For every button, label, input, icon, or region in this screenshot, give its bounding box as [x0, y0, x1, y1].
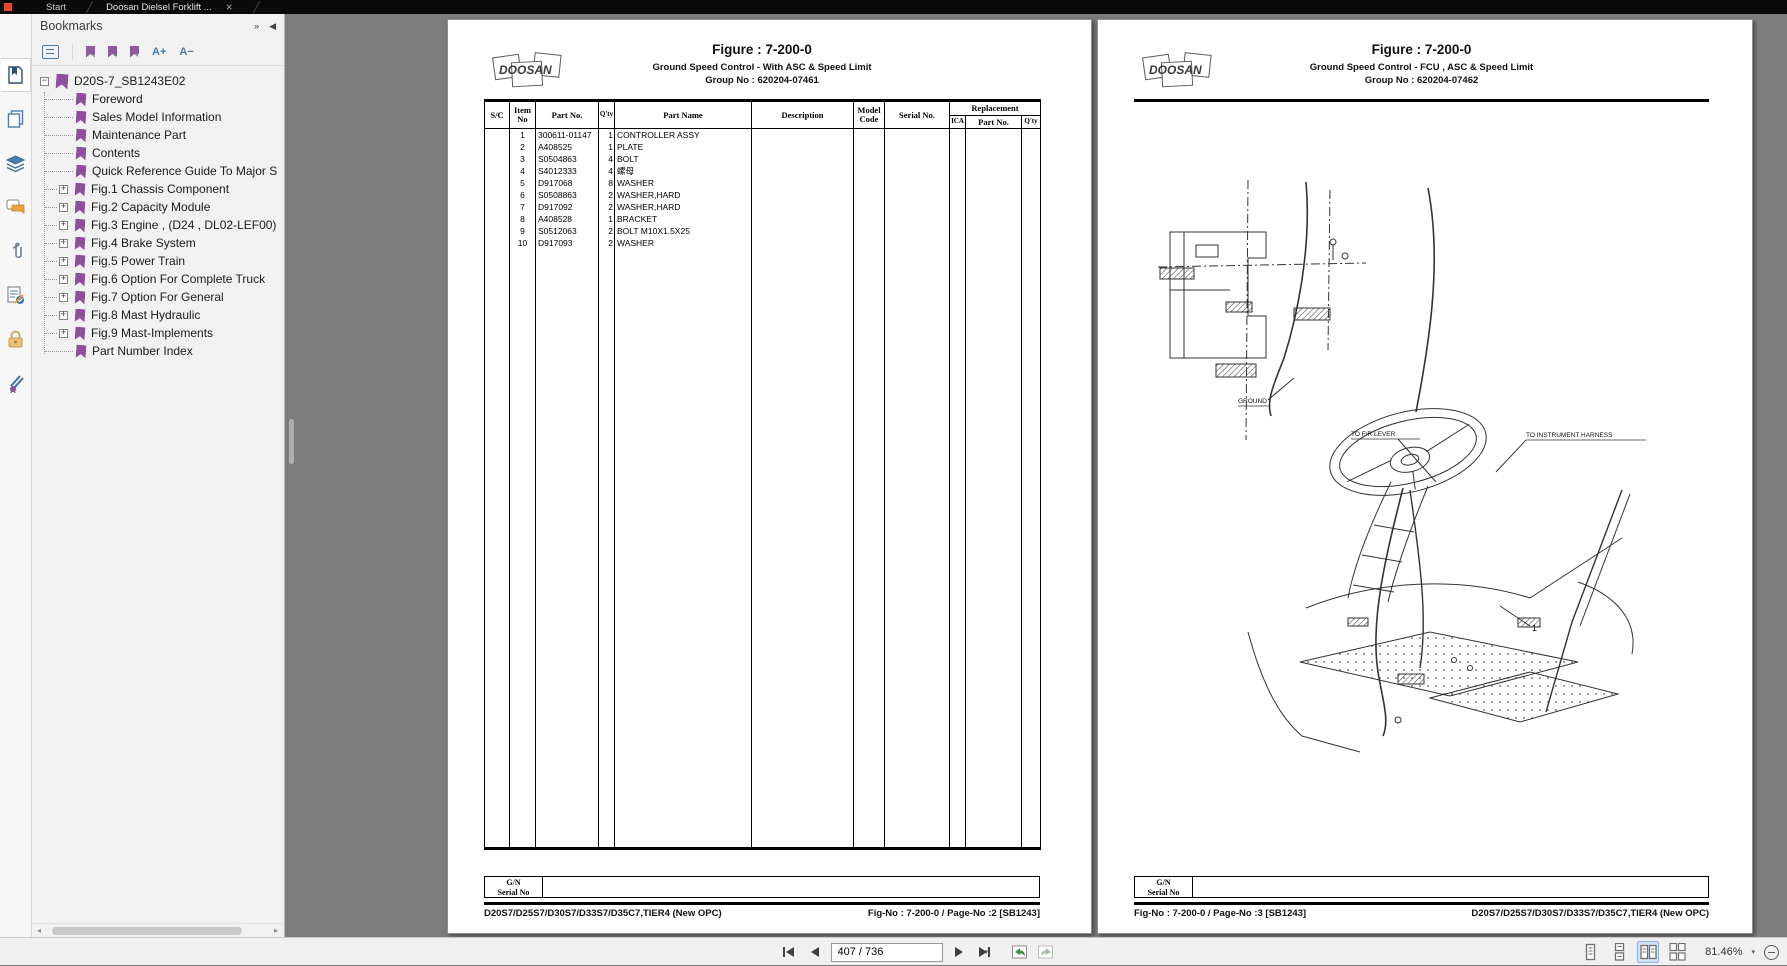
signature-panel-button[interactable] — [1, 366, 31, 400]
table-row: 6 S0508863 2 WASHER,HARD — [485, 189, 1041, 201]
app-logo-icon[interactable] — [4, 3, 12, 11]
col-header-sc: S/C — [485, 101, 510, 129]
col-header-repl-qty: Q'ty — [1022, 116, 1041, 129]
cell-item: 9 — [510, 225, 536, 237]
bookmark-item[interactable]: Part Number Index — [32, 342, 284, 360]
exploded-view-diagram: GROUND TO F/R LEVER TO INSTRUMENT HARNES… — [1098, 20, 1754, 935]
expand-toggle[interactable]: + — [59, 257, 68, 266]
bookmark-root-label: D20S-7_SB1243E02 — [74, 74, 185, 88]
document-area[interactable]: DOOSAN Figure : 7-200-0 Ground Speed Con… — [285, 14, 1787, 937]
signature-pen-icon — [7, 374, 25, 393]
single-page-view-button[interactable] — [1579, 941, 1601, 963]
expand-toggle[interactable]: + — [59, 203, 68, 212]
expand-all-icon[interactable]: A+ — [152, 46, 166, 58]
bookmark-item-label: Fig.8 Mast Hydraulic — [91, 308, 200, 322]
cell-qty: 4 — [599, 165, 615, 177]
bookmark-item-label: Contents — [92, 146, 140, 160]
continuous-view-button[interactable] — [1608, 941, 1630, 963]
bookmark-item[interactable]: Quick Reference Guide To Major S — [32, 162, 284, 180]
cell-qty: 1 — [599, 129, 615, 142]
cell-qty: 1 — [599, 213, 615, 225]
next-page-button[interactable] — [949, 942, 969, 962]
col-header-item: Item No — [510, 101, 536, 129]
tab-close-icon[interactable]: ✕ — [226, 2, 233, 13]
previous-view-button[interactable] — [1011, 944, 1029, 960]
previous-page-button[interactable] — [805, 942, 825, 962]
table-row: 10 D917093 2 WASHER — [485, 237, 1041, 249]
col-header-serial: Serial No. — [885, 101, 950, 129]
bookmark-icon — [75, 290, 86, 304]
bookmark-item-label: Fig.5 Power Train — [91, 254, 185, 268]
bookmark-root[interactable]: − D20S-7_SB1243E02 — [32, 72, 284, 90]
cell-qty: 2 — [599, 189, 615, 201]
bookmark-icon — [76, 344, 87, 358]
bookmark-options-icon[interactable] — [42, 45, 59, 59]
bookmark-item[interactable]: + Fig.2 Capacity Module — [32, 198, 284, 216]
bookmark-item[interactable]: + Fig.7 Option For General — [32, 288, 284, 306]
cell-name: CONTROLLER ASSY — [615, 129, 752, 142]
table-row: 8 A408528 1 BRACKET — [485, 213, 1041, 225]
window-tab-bar: Start Doosan Dielsel Forklift ... ✕ — [0, 0, 1787, 14]
table-row: 3 S0504863 4 BOLT — [485, 153, 1041, 165]
bookmarks-panel-header: Bookmarks » ◀ — [32, 14, 284, 38]
bookmark-icon — [75, 326, 86, 340]
bookmark-icon — [76, 110, 87, 124]
bookmark-item-label: Sales Model Information — [92, 110, 221, 124]
document-page-right: DOOSAN Figure : 7-200-0 Ground Speed Con… — [1097, 19, 1753, 934]
bookmark-item-label: Quick Reference Guide To Major S — [92, 164, 277, 178]
bookmark-item-label: Fig.7 Option For General — [91, 290, 224, 304]
cell-part: D917093 — [536, 237, 599, 249]
pages-panel-button[interactable] — [1, 102, 31, 136]
tab-start[interactable]: Start — [30, 0, 82, 14]
tab-start-label: Start — [46, 2, 66, 13]
cell-qty: 4 — [599, 153, 615, 165]
bookmark-item-label: Maintenance Part — [92, 128, 186, 142]
col-header-model: Model Code — [854, 101, 885, 129]
diagram-label-instrument-harness: TO INSTRUMENT HARNESS — [1526, 432, 1613, 439]
bookmark-item[interactable]: + Fig.9 Mast-Implements — [32, 324, 284, 342]
bookmark-item[interactable]: + Fig.3 Engine , (D24 , DL02-LEF00) — [32, 216, 284, 234]
navigation-icon-strip — [0, 14, 32, 937]
panel-collapse-icon[interactable]: ◀ — [269, 21, 276, 32]
expand-toggle[interactable]: + — [59, 239, 68, 248]
panel-expand-icon[interactable]: » — [254, 21, 259, 31]
cell-part: D917068 — [536, 177, 599, 189]
zoom-percentage[interactable]: 81.46% — [1705, 946, 1742, 958]
cell-part: A408525 — [536, 141, 599, 153]
cell-item: 2 — [510, 141, 536, 153]
bookmark-icon — [76, 128, 87, 142]
bookmark-icon — [76, 146, 87, 160]
cell-name: BOLT — [615, 153, 752, 165]
vertical-scrollbar-thumb[interactable] — [289, 419, 294, 464]
table-row: 2 A408525 1 PLATE — [485, 141, 1041, 153]
col-header-repl-part: Part No. — [966, 116, 1022, 129]
bookmark-item-label: Fig.6 Option For Complete Truck — [91, 272, 265, 286]
bookmark-icon — [75, 254, 86, 268]
cell-item: 6 — [510, 189, 536, 201]
bookmark-item[interactable]: Maintenance Part — [32, 126, 284, 144]
status-bar: ▾ — [0, 937, 1787, 965]
toolbar-divider — [72, 44, 73, 60]
bookmark-item-label: Part Number Index — [92, 344, 193, 358]
table-row: 4 S4012333 4 螺母 — [485, 165, 1041, 177]
scroll-right-icon[interactable]: ▸ — [269, 926, 283, 935]
bookmark-icon — [75, 200, 86, 214]
attachments-panel-button[interactable] — [1, 234, 31, 268]
expand-toggle[interactable]: + — [59, 275, 68, 284]
bookmarks-panel: Bookmarks » ◀ × + ↻ A+ A− − D20S-7_SB124… — [32, 14, 285, 937]
cell-part: S0508863 — [536, 189, 599, 201]
collapse-toggle[interactable]: − — [40, 77, 49, 86]
col-header-desc: Description — [752, 101, 854, 129]
locate-bookmark-icon[interactable]: ↻ — [130, 46, 139, 58]
cell-qty: 2 — [599, 225, 615, 237]
collapse-all-icon[interactable]: A− — [179, 46, 193, 58]
cell-item: 10 — [510, 237, 536, 249]
cell-item: 4 — [510, 165, 536, 177]
col-header-part: Part No. — [536, 101, 599, 129]
scrollbar-thumb[interactable] — [52, 927, 242, 935]
last-page-button[interactable] — [975, 942, 995, 962]
cell-item: 7 — [510, 201, 536, 213]
figure-title: Figure : 7-200-0 — [484, 42, 1040, 57]
lock-icon — [7, 330, 24, 349]
bookmark-icon — [75, 272, 86, 286]
col-header-name: Part Name — [615, 101, 752, 129]
security-panel-button[interactable] — [1, 322, 31, 356]
table-row: 1 300611-01147 1 CONTROLLER ASSY — [485, 129, 1041, 142]
col-header-replacement: Replacement — [950, 101, 1041, 116]
cell-name: BRACKET — [615, 213, 752, 225]
certify-panel-button[interactable] — [1, 278, 31, 312]
cell-part: S4012333 — [536, 165, 599, 177]
cell-item: 3 — [510, 153, 536, 165]
continuous-facing-view-button[interactable] — [1666, 941, 1688, 963]
bookmark-icon — [55, 73, 68, 89]
bookmark-item[interactable]: + Fig.8 Mast Hydraulic — [32, 306, 284, 324]
zoom-caret-icon[interactable]: ▾ — [1751, 948, 1755, 956]
bookmark-item[interactable]: + Fig.4 Brake System — [32, 234, 284, 252]
serial-number-label: G/N Serial No — [485, 877, 543, 897]
bookmark-item-label: Fig.2 Capacity Module — [91, 200, 210, 214]
page-footer-figno: Fig-No : 7-200-0 / Page-No :3 [SB1243] — [1134, 908, 1306, 919]
expand-toggle[interactable]: + — [59, 221, 68, 230]
facing-view-button[interactable] — [1637, 941, 1659, 963]
serial-number-box: G/N Serial No — [1134, 876, 1709, 898]
bookmarks-toolbar: × + ↻ A+ A− — [32, 38, 284, 66]
add-bookmark-icon[interactable]: + — [108, 46, 117, 58]
bookmark-item[interactable]: + Fig.5 Power Train — [32, 252, 284, 270]
certify-sign-icon — [7, 286, 25, 305]
bookmark-icon — [75, 218, 86, 232]
expand-toggle[interactable]: + — [59, 311, 68, 320]
bookmark-item-label: Fig.9 Mast-Implements — [91, 326, 213, 340]
bookmark-page-icon — [7, 66, 24, 84]
bookmark-icon — [75, 236, 86, 250]
cell-part: 300611-01147 — [536, 129, 599, 142]
bookmark-item-label: Fig.3 Engine , (D24 , DL02-LEF00) — [91, 218, 276, 232]
bookmark-item-label: Fig.1 Chassis Component — [91, 182, 229, 196]
diagram-label-fr-lever: TO F/R LEVER — [1351, 431, 1396, 438]
cell-part: S0512063 — [536, 225, 599, 237]
cell-part: S0504863 — [536, 153, 599, 165]
paperclip-icon — [8, 242, 24, 261]
bookmarks-panel-title: Bookmarks — [40, 19, 103, 33]
cell-qty: 1 — [599, 141, 615, 153]
layers-icon — [6, 155, 25, 172]
cell-name: WASHER,HARD — [615, 201, 752, 213]
bookmark-item[interactable]: + Fig.6 Option For Complete Truck — [32, 270, 284, 288]
table-row: 5 D917068 8 WASHER — [485, 177, 1041, 189]
cell-name: 螺母 — [615, 165, 752, 177]
bookmark-item[interactable]: Foreword — [32, 90, 284, 108]
cell-name: WASHER,HARD — [615, 189, 752, 201]
page-number-combo[interactable]: ▾ — [831, 943, 943, 962]
scrollbar-track[interactable] — [46, 924, 269, 937]
bookmark-icon — [75, 308, 86, 322]
cell-qty: 8 — [599, 177, 615, 189]
cell-qty: 2 — [599, 237, 615, 249]
tab-document[interactable]: Doosan Dielsel Forklift ... ✕ — [90, 0, 249, 14]
cell-part: A408528 — [536, 213, 599, 225]
bookmark-item[interactable]: Contents — [32, 144, 284, 162]
expand-toggle[interactable]: + — [59, 329, 68, 338]
footer-rule — [1134, 902, 1709, 905]
bookmark-icon — [75, 182, 86, 196]
bookmark-item[interactable]: + Fig.1 Chassis Component — [32, 180, 284, 198]
cell-name: BOLT M10X1.5X25 — [615, 225, 752, 237]
tab-document-label: Doosan Dielsel Forklift ... — [106, 2, 212, 13]
bookmark-item-label: Fig.4 Brake System — [91, 236, 196, 250]
serial-number-label: G/N Serial No — [1135, 877, 1193, 897]
comments-panel-button[interactable] — [1, 190, 31, 224]
bookmarks-horizontal-scrollbar[interactable]: ◂ ▸ — [32, 923, 283, 937]
bookmarks-panel-button[interactable] — [1, 58, 31, 92]
bookmarks-tree: − D20S-7_SB1243E02 Foreword Sales Model … — [32, 66, 284, 937]
cell-item: 1 — [510, 129, 536, 142]
first-page-button[interactable] — [779, 942, 799, 962]
expand-toggle[interactable]: + — [59, 293, 68, 302]
page-footer-models: D20S7/D25S7/D30S7/D33S7/D35C7,TIER4 (New… — [484, 908, 722, 919]
cell-name: PLATE — [615, 141, 752, 153]
cell-item: 8 — [510, 213, 536, 225]
footer-rule — [484, 902, 1040, 905]
table-row: 7 D917092 2 WASHER,HARD — [485, 201, 1041, 213]
col-header-qty: Q'ty — [599, 101, 615, 129]
group-number: Group No : 620204-07461 — [484, 75, 1040, 86]
delete-bookmark-icon[interactable]: × — [86, 46, 95, 58]
cell-item: 5 — [510, 177, 536, 189]
bookmark-icon — [76, 164, 87, 178]
layers-panel-button[interactable] — [1, 146, 31, 180]
bookmark-item[interactable]: Sales Model Information — [32, 108, 284, 126]
cell-name: WASHER — [615, 237, 752, 249]
page-footer-models: D20S7/D25S7/D30S7/D33S7/D35C7,TIER4 (New… — [1471, 908, 1709, 919]
table-empty-space — [485, 249, 1041, 848]
parts-table: S/C Item No Part No. Q'ty Part Name Desc… — [484, 99, 1041, 850]
zoom-out-button[interactable] — [1764, 945, 1779, 960]
cell-qty: 2 — [599, 201, 615, 213]
expand-toggle[interactable]: + — [59, 185, 68, 194]
figure-subtitle: Ground Speed Control - With ASC & Speed … — [484, 62, 1040, 73]
diagram-callout-1: 1 — [1532, 623, 1537, 633]
bookmark-item-label: Foreword — [92, 92, 143, 106]
diagram-label-ground: GROUND — [1238, 398, 1267, 405]
page-footer-figno: Fig-No : 7-200-0 / Page-No :2 [SB1243] — [868, 908, 1040, 919]
cell-name: WASHER — [615, 177, 752, 189]
document-page-left: DOOSAN Figure : 7-200-0 Ground Speed Con… — [447, 19, 1092, 934]
comments-icon — [6, 199, 25, 216]
table-row: 9 S0512063 2 BOLT M10X1.5X25 — [485, 225, 1041, 237]
pages-icon — [7, 110, 25, 128]
scroll-left-icon[interactable]: ◂ — [32, 926, 46, 935]
cell-part: D917092 — [536, 201, 599, 213]
bookmark-icon — [76, 92, 87, 106]
main-region: Bookmarks » ◀ × + ↻ A+ A− − D20S-7_SB124… — [0, 14, 1787, 937]
col-header-ica: ICA — [950, 116, 966, 129]
serial-number-box: G/N Serial No — [484, 876, 1040, 898]
next-view-button[interactable] — [1037, 944, 1055, 960]
